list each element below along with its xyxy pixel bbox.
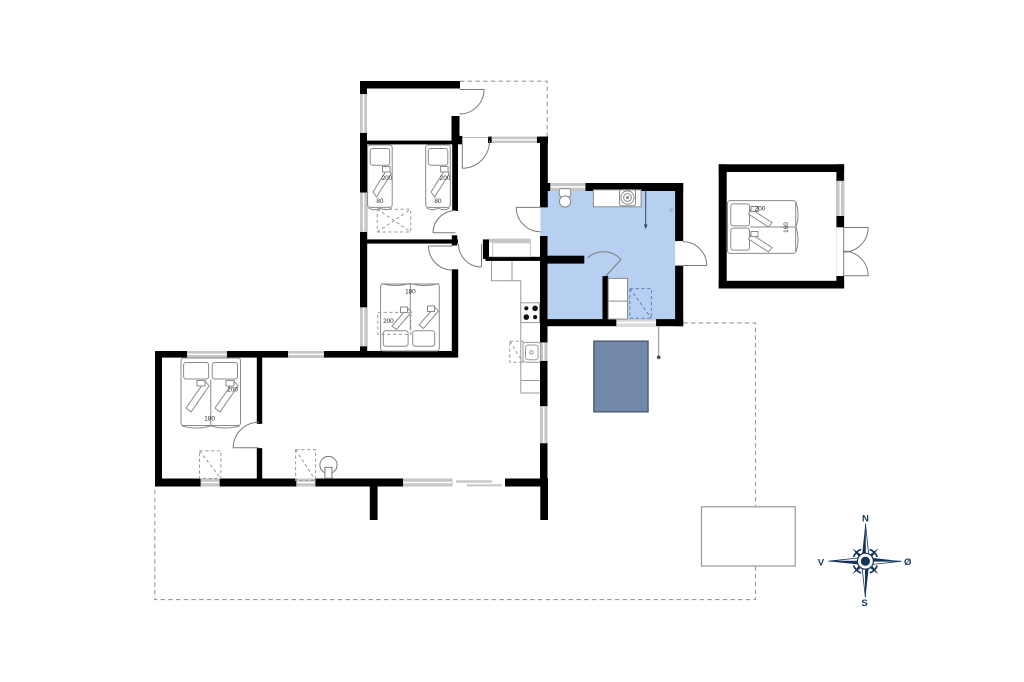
svg-text:160: 160 <box>783 222 790 233</box>
svg-text:N: N <box>862 514 869 525</box>
svg-text:200: 200 <box>382 175 393 182</box>
svg-text:180: 180 <box>204 416 215 423</box>
svg-text:200: 200 <box>440 175 451 182</box>
svg-text:S: S <box>861 598 867 609</box>
svg-text:V: V <box>818 557 825 568</box>
svg-text:200: 200 <box>755 206 766 213</box>
svg-text:80: 80 <box>376 198 384 205</box>
svg-text:80: 80 <box>434 198 442 205</box>
svg-text:180: 180 <box>405 289 416 296</box>
svg-text:Ø: Ø <box>904 557 911 568</box>
svg-text:200: 200 <box>383 318 394 325</box>
svg-text:200: 200 <box>227 387 238 394</box>
